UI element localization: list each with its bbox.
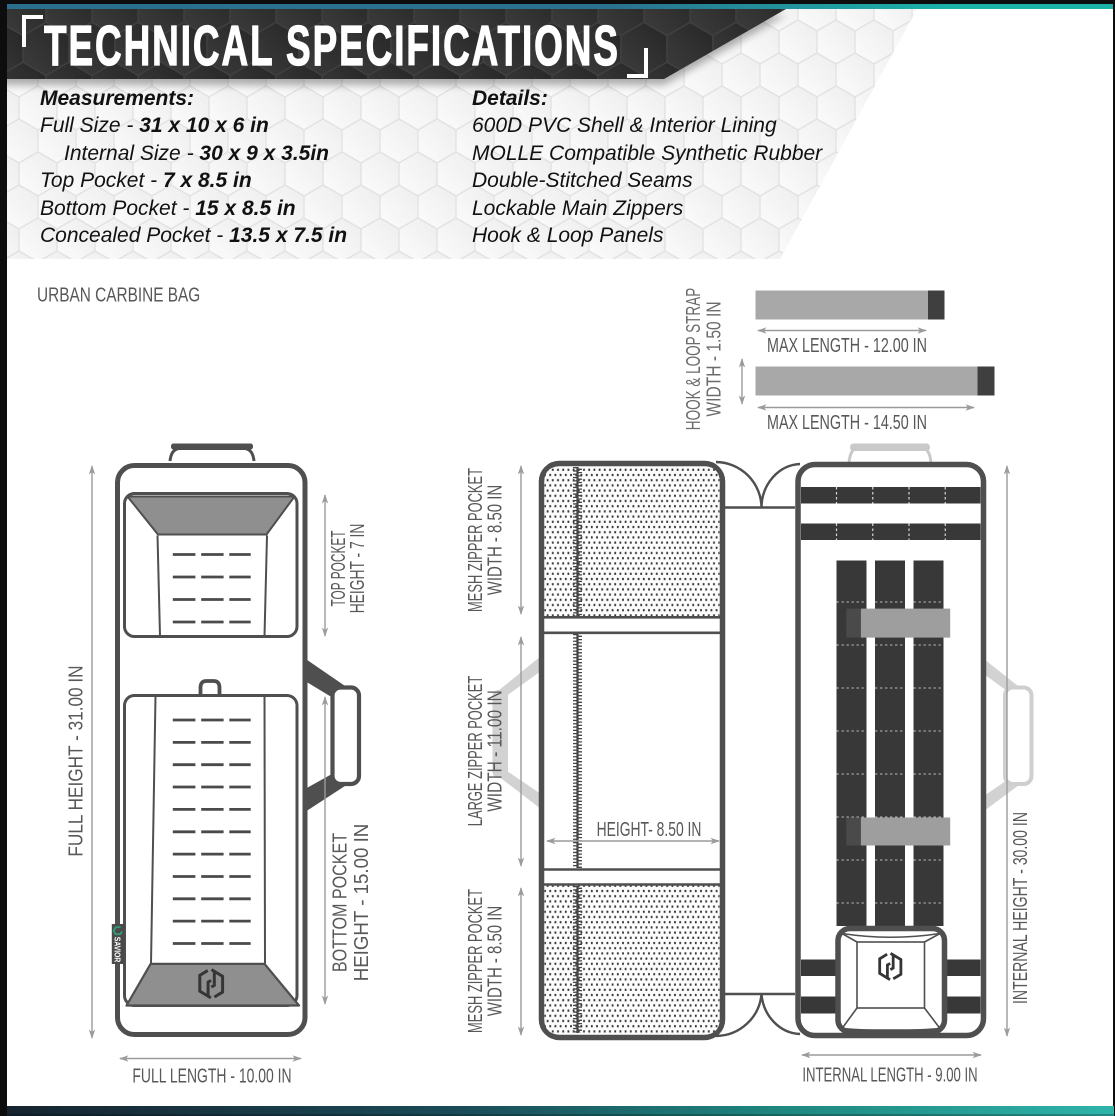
svg-text:BOTTOM POCKET: BOTTOM POCKET xyxy=(329,833,351,972)
svg-text:HEIGHT - 15.00 IN: HEIGHT - 15.00 IN xyxy=(350,824,372,982)
svg-text:INTERNAL LENGTH - 9.00 IN: INTERNAL LENGTH - 9.00 IN xyxy=(802,1064,977,1086)
svg-text:FULL HEIGHT - 31.00 IN: FULL HEIGHT - 31.00 IN xyxy=(65,665,87,856)
svg-text:MAX LENGTH - 12.00 IN: MAX LENGTH - 12.00 IN xyxy=(767,334,927,356)
svg-text:WIDTH - 11.00 IN: WIDTH - 11.00 IN xyxy=(484,690,506,812)
svg-text:WIDTH - 8.50 IN: WIDTH - 8.50 IN xyxy=(484,906,506,1016)
svg-text:HOOK & LOOP STRAP: HOOK & LOOP STRAP xyxy=(682,288,704,430)
svg-text:HEIGHT - 7 IN: HEIGHT - 7 IN xyxy=(346,524,368,614)
svg-text:FULL LENGTH - 10.00 IN: FULL LENGTH - 10.00 IN xyxy=(132,1065,291,1087)
svg-text:URBAN CARBINE BAG: URBAN CARBINE BAG xyxy=(37,284,200,306)
svg-text:SAVIOR: SAVIOR xyxy=(113,937,122,963)
svg-text:HEIGHT- 8.50 IN: HEIGHT- 8.50 IN xyxy=(597,818,702,840)
svg-text:MAX LENGTH - 14.50 IN: MAX LENGTH - 14.50 IN xyxy=(767,411,927,433)
svg-text:WIDTH - 8.50 IN: WIDTH - 8.50 IN xyxy=(484,485,506,595)
svg-text:INTERNAL HEIGHT - 30.00 IN: INTERNAL HEIGHT - 30.00 IN xyxy=(1009,812,1031,1004)
svg-text:WIDTH - 1.50 IN: WIDTH - 1.50 IN xyxy=(703,301,725,416)
